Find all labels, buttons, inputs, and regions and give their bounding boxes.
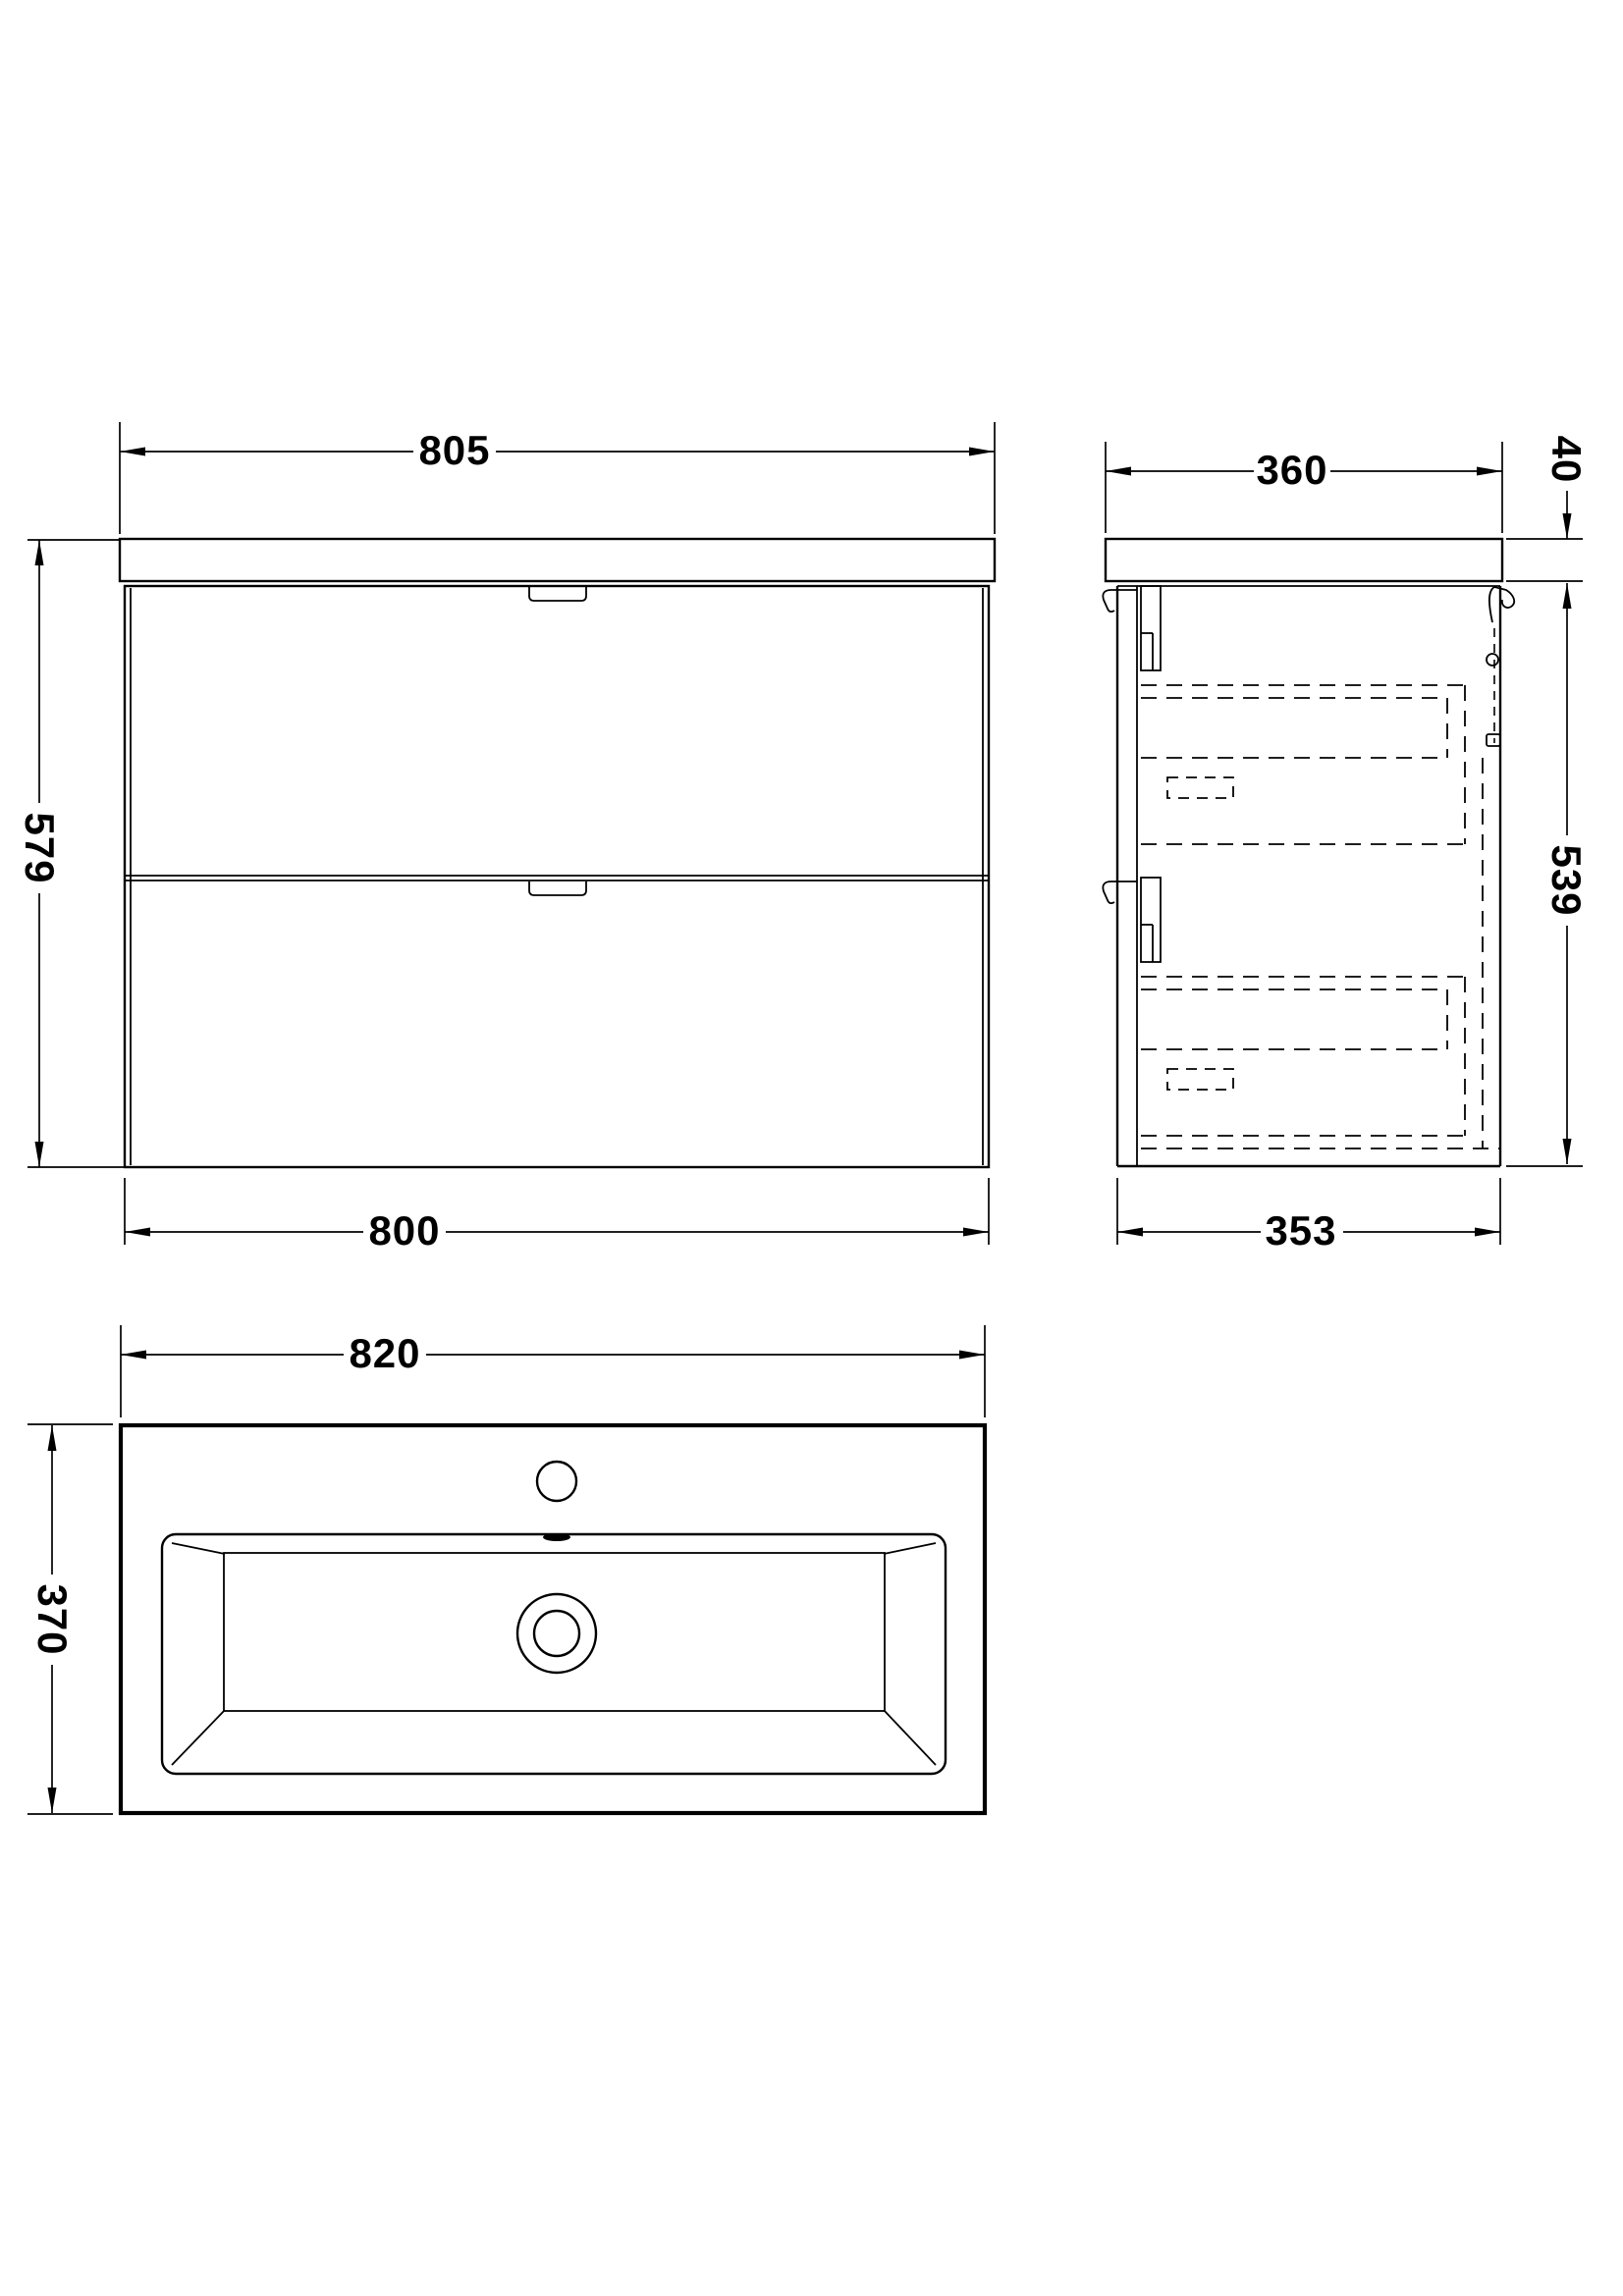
front-width-label: 805	[418, 427, 490, 473]
side-bottom-depth-label: 353	[1265, 1207, 1336, 1254]
plan-depth-label: 370	[29, 1583, 76, 1655]
front-bottom-width-label: 800	[368, 1207, 440, 1254]
front-height-label: 579	[17, 812, 63, 883]
side-worktop-thickness-label: 40	[1543, 436, 1590, 484]
plan-width-label: 820	[349, 1330, 420, 1376]
side-height-label: 539	[1543, 844, 1590, 916]
side-depth-label: 360	[1256, 447, 1327, 493]
vanity-unit-technical-drawing: 805 579 800	[0, 0, 1623, 2296]
overflow-slot	[543, 1533, 570, 1541]
page: 805 579 800	[0, 0, 1623, 2296]
